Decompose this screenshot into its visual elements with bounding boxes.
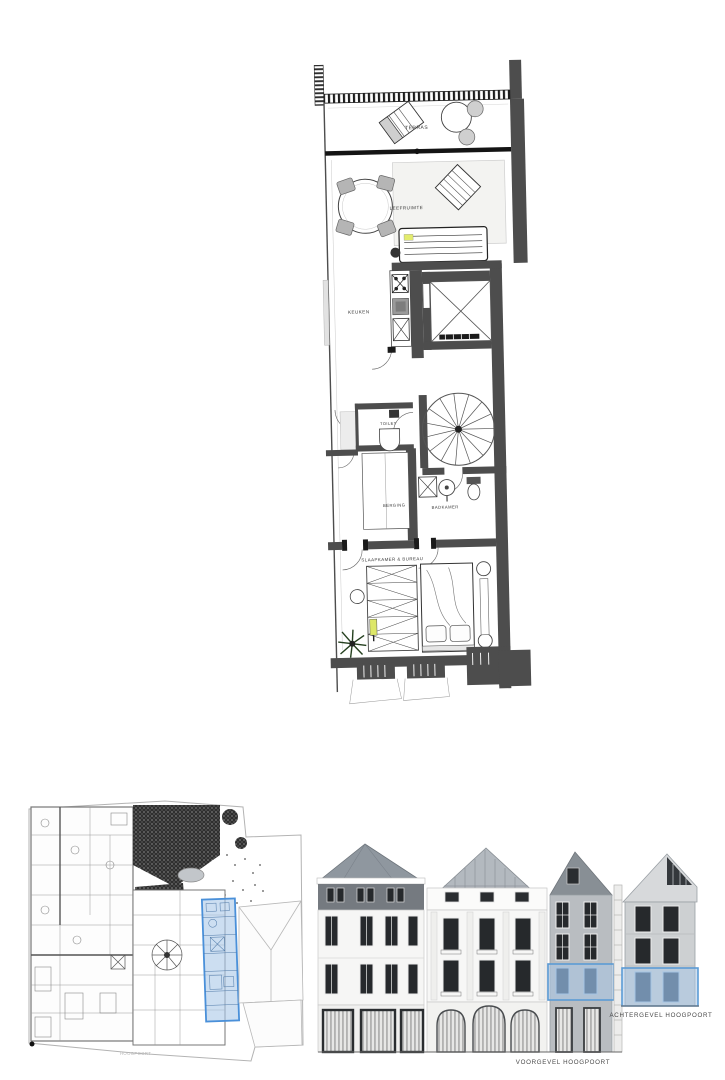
rear-elevation-caption: ACHTERGEVEL HOOGPOORT <box>609 1012 712 1019</box>
highlight-mark <box>404 234 413 240</box>
bed <box>420 563 474 652</box>
oval-table <box>178 868 204 882</box>
neighbour-roofs <box>239 901 303 1047</box>
chimney <box>509 60 522 99</box>
arched-door <box>511 1010 539 1052</box>
front-highlight-zone <box>548 964 614 1000</box>
arched-door <box>473 1006 505 1052</box>
badkamer-room: BADKAMER <box>418 466 507 510</box>
rear-highlight-zone <box>622 968 698 1006</box>
building-middle <box>427 848 547 1052</box>
pencil-marker <box>370 619 377 635</box>
nightstand <box>478 634 492 648</box>
apartment-floor-plan: TERRAS <box>295 50 555 710</box>
door-jamb <box>388 347 396 353</box>
garage-door <box>584 1008 600 1052</box>
room-label-terras: TERRAS <box>405 125 428 132</box>
toilet-fixture <box>379 429 399 451</box>
terrace-lounge-chair <box>379 101 423 143</box>
leefruimte-room: LEEFRUIMTE <box>334 160 507 264</box>
room-label-berging: BERGING <box>383 502 406 508</box>
room-label-badkamer: BADKAMER <box>432 504 459 510</box>
neighbour-edge <box>614 885 622 1052</box>
nightstand <box>476 562 490 576</box>
shower <box>419 477 437 497</box>
sofa <box>390 227 488 263</box>
front-elevation-caption: VOORGEVEL HOOGPOORT <box>516 1059 610 1066</box>
neighbour-apartments <box>31 807 133 1041</box>
building-left <box>317 844 425 1052</box>
window-bay <box>407 662 445 679</box>
site-plan-caption: HOOGPOORT <box>120 1051 151 1056</box>
washbasin <box>439 479 455 501</box>
dimension-line-vertical <box>331 160 342 650</box>
wc <box>467 477 482 500</box>
shelf <box>480 579 489 635</box>
terrace-post <box>314 65 324 105</box>
site-plan: HOOGPOORT <box>15 795 305 1070</box>
cistern <box>389 410 399 418</box>
elevation-drawings: VOORGEVEL HOOGPOORT ACHTERGEVEL HOOGPOOR… <box>305 840 725 1075</box>
slaapkamer-room: SLAAPKAMER & BUREAU <box>336 555 492 658</box>
storefront-door <box>323 1010 353 1052</box>
terrace-balustrade <box>324 90 510 103</box>
elevator-shaft <box>422 270 492 350</box>
storefront-door <box>361 1010 395 1052</box>
toilet-room: TOILET <box>340 402 414 452</box>
stool <box>350 589 364 603</box>
room-label-slaapkamer: SLAAPKAMER & BUREAU <box>361 556 423 562</box>
spiral-staircase <box>419 392 496 468</box>
right-wall-upper <box>510 99 528 263</box>
building-project <box>548 852 614 1052</box>
arched-door <box>437 1010 465 1052</box>
terrace-chair <box>467 101 483 117</box>
room-label-toilet: TOILET <box>380 421 397 426</box>
left-wall <box>324 102 337 692</box>
storefront-door <box>401 1010 423 1052</box>
architectural-drawing-sheet: TERRAS <box>0 0 725 1080</box>
wall <box>410 270 424 358</box>
right-wall-lower <box>490 263 512 688</box>
sink-basin <box>396 301 406 311</box>
front-elevation: VOORGEVEL HOOGPOORT <box>317 844 622 1066</box>
terrace-chair <box>459 129 475 145</box>
survey-point <box>30 1042 35 1047</box>
room-label-keuken: KEUKEN <box>348 309 370 314</box>
highlighted-unit <box>202 898 239 1021</box>
window-bay <box>357 663 395 680</box>
keuken-room: KEUKEN <box>347 270 424 360</box>
room-label-leefruimte: LEEFRUIMTE <box>390 205 424 211</box>
site-spiral-stair <box>152 940 182 970</box>
dishwasher <box>393 318 409 340</box>
street-facade-wall <box>330 646 531 705</box>
shaft-slot <box>423 284 430 308</box>
rear-elevation: ACHTERGEVEL HOOGPOORT <box>609 854 712 1019</box>
terrace-table <box>441 102 472 133</box>
cooktop <box>392 274 408 292</box>
garage-door <box>556 1008 572 1052</box>
